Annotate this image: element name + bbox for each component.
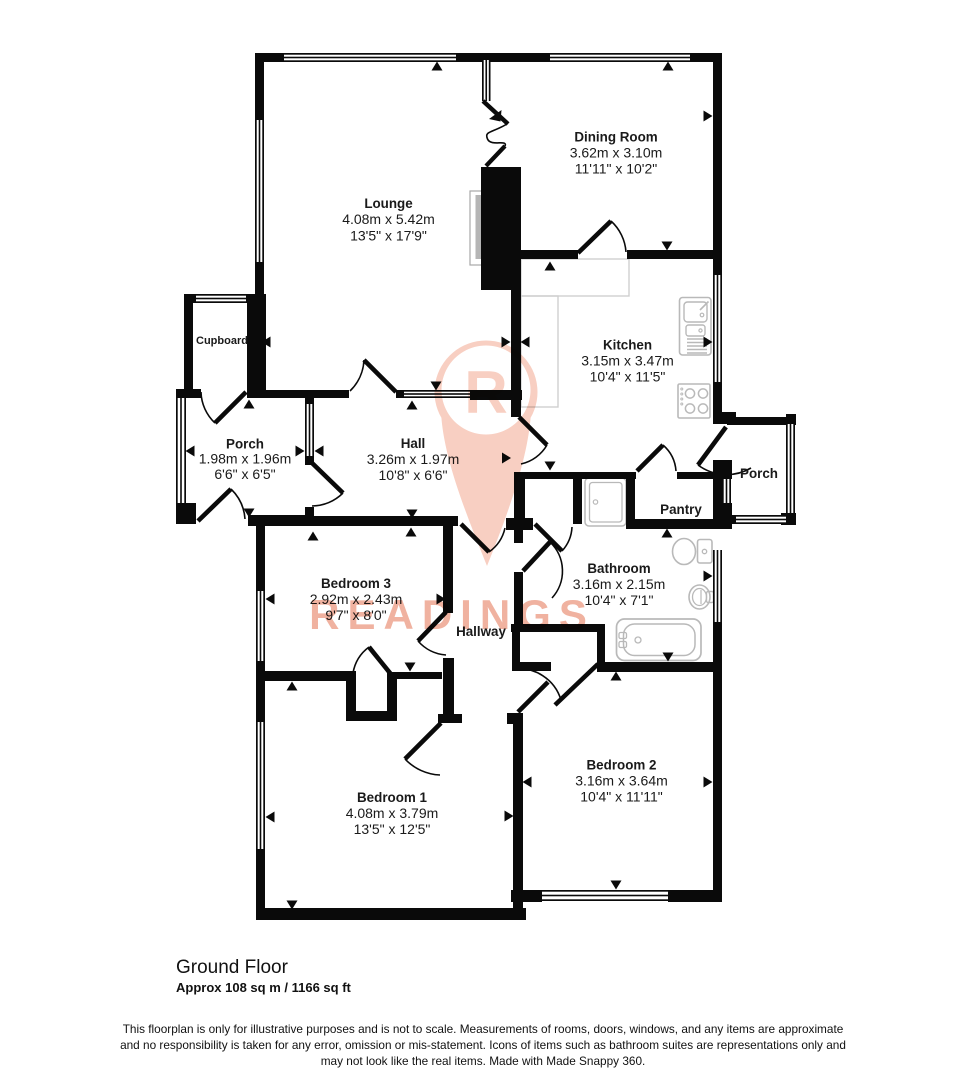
svg-text:Hall: Hall bbox=[401, 436, 426, 451]
svg-text:3.16m x 3.64m: 3.16m x 3.64m bbox=[575, 773, 668, 789]
svg-text:Cupboard: Cupboard bbox=[196, 335, 248, 347]
svg-text:Ground Floor: Ground Floor bbox=[176, 957, 289, 978]
svg-text:Kitchen: Kitchen bbox=[603, 338, 652, 353]
svg-text:Bedroom 2: Bedroom 2 bbox=[587, 758, 657, 773]
svg-text:Bathroom: Bathroom bbox=[587, 561, 650, 576]
svg-text:10'4" x 11'11": 10'4" x 11'11" bbox=[580, 789, 663, 805]
svg-text:Porch: Porch bbox=[226, 437, 264, 452]
svg-text:10'8" x 6'6": 10'8" x 6'6" bbox=[379, 467, 448, 483]
svg-text:Dining Room: Dining Room bbox=[574, 130, 657, 145]
svg-text:1.98m x 1.96m: 1.98m x 1.96m bbox=[199, 451, 292, 467]
svg-text:3.62m x 3.10m: 3.62m x 3.10m bbox=[570, 145, 663, 161]
svg-text:3.26m x 1.97m: 3.26m x 1.97m bbox=[367, 451, 460, 467]
svg-text:and no responsibility is taken: and no responsibility is taken for any e… bbox=[120, 1038, 846, 1052]
svg-text:6'6" x 6'5": 6'6" x 6'5" bbox=[214, 466, 275, 482]
svg-text:This floorplan is only for ill: This floorplan is only for illustrative … bbox=[123, 1022, 844, 1036]
svg-text:13'5" x 17'9": 13'5" x 17'9" bbox=[350, 228, 427, 244]
svg-text:4.08m x 3.79m: 4.08m x 3.79m bbox=[346, 805, 439, 821]
svg-text:Bedroom 3: Bedroom 3 bbox=[321, 576, 391, 591]
svg-text:3.16m x 2.15m: 3.16m x 2.15m bbox=[573, 576, 666, 592]
svg-text:10'4" x 11'5": 10'4" x 11'5" bbox=[590, 369, 666, 385]
svg-text:Porch: Porch bbox=[740, 466, 778, 481]
svg-text:Bedroom 1: Bedroom 1 bbox=[357, 790, 427, 805]
svg-text:11'11" x 10'2": 11'11" x 10'2" bbox=[575, 161, 658, 177]
svg-text:Approx 108 sq m / 1166 sq ft: Approx 108 sq m / 1166 sq ft bbox=[176, 980, 352, 995]
svg-text:Pantry: Pantry bbox=[660, 502, 702, 517]
svg-text:Lounge: Lounge bbox=[364, 196, 412, 211]
svg-text:4.08m x 5.42m: 4.08m x 5.42m bbox=[342, 211, 435, 227]
svg-text:R: R bbox=[464, 359, 507, 426]
svg-text:3.15m x 3.47m: 3.15m x 3.47m bbox=[581, 353, 674, 369]
svg-text:13'5" x 12'5": 13'5" x 12'5" bbox=[354, 821, 431, 837]
svg-text:may not look like the real ite: may not look like the real items. Made w… bbox=[321, 1054, 646, 1068]
svg-text:READINGS: READINGS bbox=[309, 591, 595, 638]
